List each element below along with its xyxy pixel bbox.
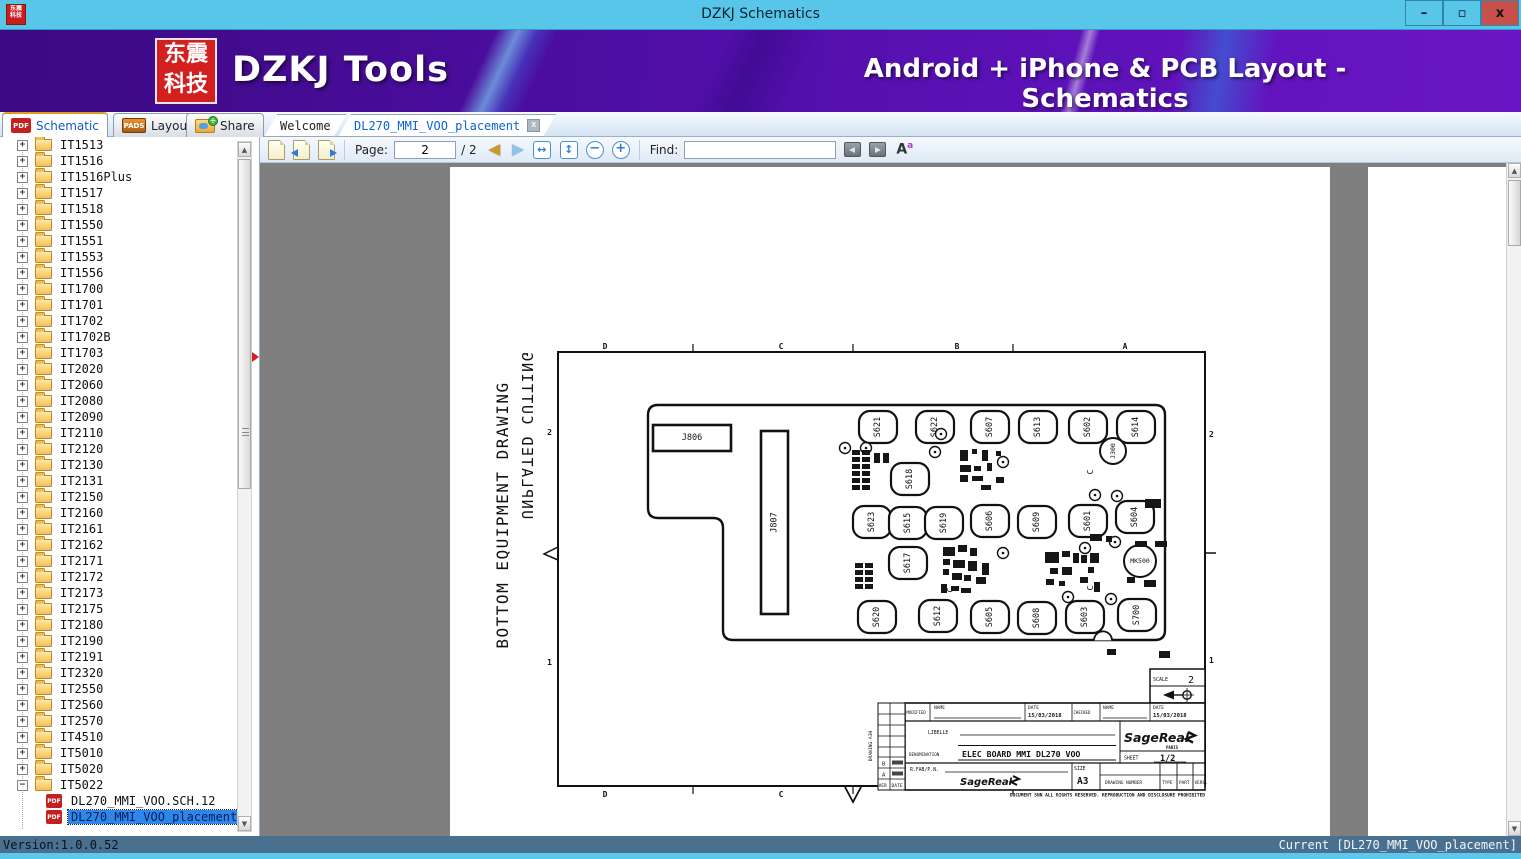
tree-item-folder[interactable]: +IT2060 xyxy=(0,377,237,393)
expand-icon[interactable]: + xyxy=(17,428,28,439)
folder-icon xyxy=(35,283,52,295)
tree-item-folder[interactable]: +IT2090 xyxy=(0,409,237,425)
doc-tab-label: DL270_MMI_VOO_placement xyxy=(354,119,520,133)
folder-icon xyxy=(35,763,52,775)
tree-item-label: IT2120 xyxy=(57,442,106,456)
folder-icon xyxy=(35,603,52,615)
tree-item-label: IT2080 xyxy=(57,394,106,408)
status-bar: Version:1.0.0.52 Current [DL270_MMI_VOO_… xyxy=(0,836,1521,853)
expand-icon[interactable]: + xyxy=(17,748,28,759)
expand-icon[interactable]: + xyxy=(17,476,28,487)
tree-item-label: IT2560 xyxy=(57,698,106,712)
tree-item-label: IT5020 xyxy=(57,762,106,776)
tree-item-folder[interactable]: +IT5010 xyxy=(0,745,237,761)
title-bar: 东震 科技 DZKJ Schematics – ▫ x xyxy=(0,0,1521,30)
plus-badge-icon: + xyxy=(208,116,218,126)
folder-icon xyxy=(35,699,52,711)
folder-icon xyxy=(35,203,52,215)
folder-icon xyxy=(35,619,52,631)
tree-item-folder[interactable]: +IT2560 xyxy=(0,697,237,713)
tree-item-folder[interactable]: +IT2320 xyxy=(0,665,237,681)
expand-icon[interactable]: + xyxy=(17,604,28,615)
tree-item-folder[interactable]: +IT1702 xyxy=(0,313,237,329)
expand-icon[interactable]: + xyxy=(17,572,28,583)
logo-text-line2: 科技 xyxy=(157,70,215,100)
tree-item-label: IT2130 xyxy=(57,458,106,472)
maximize-button[interactable]: ▫ xyxy=(1443,0,1481,26)
folder-icon xyxy=(35,187,52,199)
window-title: DZKJ Schematics xyxy=(0,6,1521,22)
find-label: Find: xyxy=(650,143,679,157)
tree-item-label: IT2020 xyxy=(57,362,106,376)
find-input[interactable] xyxy=(684,141,836,159)
tree-item-folder[interactable]: +IT2131 xyxy=(0,473,237,489)
tree-item-label: IT1700 xyxy=(57,282,106,296)
page-label: Page: xyxy=(355,143,388,157)
tree-item-folder[interactable]: +IT1703 xyxy=(0,345,237,361)
close-button[interactable]: x xyxy=(1481,0,1519,26)
tree-item-label: IT2320 xyxy=(57,666,106,680)
expand-icon[interactable]: + xyxy=(17,332,28,343)
fit-width-icon[interactable]: ↔ xyxy=(533,141,551,159)
app-window: 东震 科技 DZKJ Schematics – ▫ x 东震 科技 DZKJ T… xyxy=(0,0,1521,859)
tree-item-folder[interactable]: +IT2171 xyxy=(0,553,237,569)
tree-item-folder[interactable]: −IT5022 xyxy=(0,777,237,793)
tab-label: Share xyxy=(220,119,255,133)
tree-item-label: IT1702 xyxy=(57,314,106,328)
match-case-icon[interactable]: Aa xyxy=(896,141,913,158)
tree-item-label: IT5022 xyxy=(57,778,106,792)
pdf-icon: PDF xyxy=(46,810,62,824)
scroll-up-icon[interactable]: ▲ xyxy=(1508,163,1521,178)
folder-icon xyxy=(35,555,52,567)
tree-item-label: IT1550 xyxy=(57,218,106,232)
tree-item-label: IT2191 xyxy=(57,650,106,664)
folder-icon xyxy=(35,475,52,487)
tree-item-label: IT2060 xyxy=(57,378,106,392)
folder-icon xyxy=(35,635,52,647)
expand-icon[interactable]: + xyxy=(17,140,28,151)
pads-icon: PADS xyxy=(122,118,146,133)
expand-icon[interactable]: + xyxy=(17,732,28,743)
expand-icon[interactable]: + xyxy=(17,316,28,327)
tree-item-folder[interactable]: +IT2570 xyxy=(0,713,237,729)
folder-icon xyxy=(35,139,52,151)
splitter-marker-icon xyxy=(252,352,259,362)
folder-icon xyxy=(35,267,52,279)
tree-item-label: IT1553 xyxy=(57,250,106,264)
expand-icon[interactable]: + xyxy=(17,236,28,247)
document-page xyxy=(450,167,1330,836)
app-name: DZKJ Tools xyxy=(232,50,449,90)
folder-icon xyxy=(35,171,52,183)
status-strip xyxy=(0,853,1521,859)
expand-icon[interactable]: + xyxy=(17,252,28,263)
folder-icon xyxy=(35,299,52,311)
tab-bar: PDF Schematic PADS Layout + Share Welcom… xyxy=(0,112,1521,137)
header-banner: 东震 科技 DZKJ Tools Android + iPhone & PCB … xyxy=(0,30,1521,112)
tree-item-folder[interactable]: +IT1556 xyxy=(0,265,237,281)
doc-tab-label: Welcome xyxy=(280,119,331,133)
tree-item-label: IT2550 xyxy=(57,682,106,696)
expand-icon[interactable]: + xyxy=(17,204,28,215)
tree-item-folder[interactable]: +IT1516 xyxy=(0,153,237,169)
expand-icon[interactable]: + xyxy=(17,716,28,727)
expand-icon[interactable]: + xyxy=(17,300,28,311)
tree-item-folder[interactable]: +IT2150 xyxy=(0,489,237,505)
document-page-edge xyxy=(1368,167,1506,836)
expand-icon[interactable]: + xyxy=(17,668,28,679)
folder-icon xyxy=(35,571,52,583)
zoom-in-icon[interactable]: + xyxy=(612,141,630,159)
scroll-down-icon[interactable]: ▼ xyxy=(1508,821,1521,836)
folder-icon xyxy=(35,235,52,247)
page-total: / 2 xyxy=(461,143,477,157)
tree-item-label: IT2175 xyxy=(57,602,106,616)
tree-item-folder[interactable]: +IT2120 xyxy=(0,441,237,457)
tree-item-label: IT1516 xyxy=(57,154,106,168)
tree-item-label: IT1518 xyxy=(57,202,106,216)
tree-scrollbar-thumb[interactable] xyxy=(238,159,251,489)
expand-icon[interactable]: + xyxy=(17,540,28,551)
tree-item-folder[interactable]: +IT1517 xyxy=(0,185,237,201)
tree-item-label: IT1703 xyxy=(57,346,106,360)
expand-icon[interactable]: + xyxy=(17,620,28,631)
folder-icon xyxy=(35,379,52,391)
expand-icon[interactable]: + xyxy=(17,220,28,231)
folder-icon xyxy=(35,443,52,455)
tree-item-folder[interactable]: +IT1518 xyxy=(0,201,237,217)
expand-icon[interactable]: + xyxy=(17,268,28,279)
tree-item-folder[interactable]: +IT1551 xyxy=(0,233,237,249)
tree-item-label: IT2570 xyxy=(57,714,106,728)
pdf-icon: PDF xyxy=(11,118,31,133)
folder-icon xyxy=(35,219,52,231)
toolbar-separator xyxy=(639,140,640,160)
tree-item-label: IT2173 xyxy=(57,586,106,600)
sidebar: +IT1513+IT1516+IT1516Plus+IT1517+IT1518+… xyxy=(0,137,260,836)
tree-item-folder[interactable]: +IT2550 xyxy=(0,681,237,697)
tree-item-folder[interactable]: +IT2160 xyxy=(0,505,237,521)
tree-item-label: IT2150 xyxy=(57,490,106,504)
find-previous-icon[interactable] xyxy=(844,142,861,157)
folder-icon xyxy=(35,667,52,679)
scroll-up-icon[interactable]: ▲ xyxy=(238,142,251,157)
tree-item-label: IT1517 xyxy=(57,186,106,200)
current-file-text: Current [DL270_MMI_VOO_placement] xyxy=(1279,838,1517,852)
tree-item-label: IT2110 xyxy=(57,426,106,440)
folder-icon xyxy=(35,747,52,759)
tree-item-label: IT2161 xyxy=(57,522,106,536)
company-logo: 东震 科技 xyxy=(155,38,217,104)
folder-icon xyxy=(35,427,52,439)
tab-label: Schematic xyxy=(36,119,99,133)
tree-item-label: IT2162 xyxy=(57,538,106,552)
expand-icon[interactable]: + xyxy=(17,524,28,535)
expand-icon[interactable]: + xyxy=(17,636,28,647)
document-viewport: DCBADC2121BOTTOM EQUIPMENT DRAWINGUNPLAT… xyxy=(260,163,1521,836)
tree-item-label: IT2160 xyxy=(57,506,106,520)
logo-text-line1: 东震 xyxy=(157,40,215,70)
tree-item-folder[interactable]: +IT2191 xyxy=(0,649,237,665)
expand-icon[interactable]: + xyxy=(17,460,28,471)
folder-icon xyxy=(35,155,52,167)
expand-icon[interactable]: + xyxy=(17,764,28,775)
tree-item-folder[interactable]: +IT2110 xyxy=(0,425,237,441)
tree-item-label: IT2090 xyxy=(57,410,106,424)
copy-page-right-icon[interactable] xyxy=(318,140,335,160)
expand-icon[interactable]: + xyxy=(17,188,28,199)
tree-item-folder[interactable]: +IT2162 xyxy=(0,537,237,553)
tree-item-label: IT1702B xyxy=(57,330,114,344)
folder-icon xyxy=(35,523,52,535)
scroll-down-icon[interactable]: ▼ xyxy=(238,816,251,831)
tree-item-folder[interactable]: +IT1513 xyxy=(0,137,237,153)
tree-item-folder[interactable]: +IT1701 xyxy=(0,297,237,313)
tree-item-folder[interactable]: +IT2020 xyxy=(0,361,237,377)
tree-item-label: DL270_MMI_VOO.SCH.12 xyxy=(68,794,219,808)
file-tree: +IT1513+IT1516+IT1516Plus+IT1517+IT1518+… xyxy=(0,137,237,836)
folder-icon xyxy=(35,491,52,503)
tree-scrollbar[interactable]: ▲ ▼ xyxy=(237,141,252,832)
previous-page-icon[interactable]: ◀ xyxy=(489,142,501,157)
expand-icon[interactable]: + xyxy=(17,700,28,711)
tree-item-label: IT1551 xyxy=(57,234,106,248)
folder-icon xyxy=(35,539,52,551)
folder-icon xyxy=(35,363,52,375)
banner-tagline: Android + iPhone & PCB Layout - Schemati… xyxy=(790,54,1420,112)
tree-item-label: IT1556 xyxy=(57,266,106,280)
expand-icon[interactable]: + xyxy=(17,380,28,391)
folder-icon xyxy=(35,315,52,327)
expand-icon[interactable]: + xyxy=(17,556,28,567)
tree-item-label: IT1513 xyxy=(57,138,106,152)
folder-icon xyxy=(35,651,52,663)
tree-item-folder[interactable]: +IT1553 xyxy=(0,249,237,265)
window-controls: – ▫ x xyxy=(1405,0,1519,26)
expand-icon[interactable]: + xyxy=(17,508,28,519)
tree-item-folder[interactable]: +IT2172 xyxy=(0,569,237,585)
folder-icon xyxy=(35,347,52,359)
tree-item-folder[interactable]: +IT1700 xyxy=(0,281,237,297)
tree-item-label: IT1701 xyxy=(57,298,106,312)
folder-icon xyxy=(35,731,52,743)
tree-item-folder[interactable]: +IT2190 xyxy=(0,633,237,649)
tree-item-label: IT2190 xyxy=(57,634,106,648)
copy-page-left-icon[interactable] xyxy=(293,140,310,160)
tab-schematic[interactable]: PDF Schematic xyxy=(2,112,108,137)
folder-icon xyxy=(35,331,52,343)
expand-icon[interactable]: + xyxy=(17,684,28,695)
tree-item-label: IT2131 xyxy=(57,474,106,488)
expand-icon[interactable]: + xyxy=(17,412,28,423)
tree-item-folder[interactable]: +IT2180 xyxy=(0,617,237,633)
fit-page-icon[interactable]: ↕ xyxy=(560,141,578,159)
tab-share[interactable]: + Share xyxy=(186,113,264,137)
doc-tab-placement[interactable]: DL270_MMI_VOO_placement x xyxy=(338,114,556,137)
viewer-toolbar: Page: / 2 ◀ ▶ ↔ ↕ − + Find: Aa xyxy=(260,137,1521,163)
expand-icon[interactable]: + xyxy=(17,348,28,359)
expand-icon[interactable]: + xyxy=(17,444,28,455)
scrollbar-grip xyxy=(242,428,249,436)
tree-item-label: IT5010 xyxy=(57,746,106,760)
close-tab-icon[interactable]: x xyxy=(527,119,540,132)
tree-item-folder[interactable]: +IT1550 xyxy=(0,217,237,233)
folder-icon xyxy=(35,459,52,471)
version-text: Version:1.0.0.52 xyxy=(3,838,119,852)
zoom-out-icon[interactable]: − xyxy=(586,141,604,159)
tree-item-label: IT2171 xyxy=(57,554,106,568)
folder-icon xyxy=(35,507,52,519)
expand-icon[interactable]: + xyxy=(17,652,28,663)
tree-item-label: DL270_MMI_VOO_placement xyxy=(68,810,237,824)
folder-icon xyxy=(35,779,52,791)
page-view-icon[interactable] xyxy=(268,140,285,160)
tree-item-label: IT4510 xyxy=(57,730,106,744)
expand-icon[interactable]: + xyxy=(17,588,28,599)
find-next-icon[interactable] xyxy=(869,142,886,157)
folder-icon xyxy=(35,395,52,407)
expand-icon[interactable]: + xyxy=(17,172,28,183)
tree-item-folder[interactable]: +IT2130 xyxy=(0,457,237,473)
expand-icon[interactable]: + xyxy=(17,396,28,407)
pdf-icon: PDF xyxy=(46,794,62,808)
expand-icon[interactable]: + xyxy=(17,492,28,503)
tree-item-label: IT1516Plus xyxy=(57,170,135,184)
tree-item-folder[interactable]: +IT2161 xyxy=(0,521,237,537)
tree-item-folder[interactable]: +IT2173 xyxy=(0,585,237,601)
banner-light-streak xyxy=(452,30,562,112)
minimize-button[interactable]: – xyxy=(1405,0,1443,26)
toolbar-separator xyxy=(344,140,345,160)
expand-icon[interactable]: − xyxy=(17,780,28,791)
document-scrollbar-thumb[interactable] xyxy=(1508,180,1521,246)
document-scrollbar[interactable]: ▲ ▼ xyxy=(1506,163,1521,836)
doc-tab-welcome[interactable]: Welcome xyxy=(264,114,347,137)
folder-icon xyxy=(35,587,52,599)
expand-icon[interactable]: + xyxy=(17,284,28,295)
expand-icon[interactable]: + xyxy=(17,156,28,167)
tree-item-folder[interactable]: +IT2175 xyxy=(0,601,237,617)
folder-icon xyxy=(35,715,52,727)
tree-item-folder[interactable]: +IT5020 xyxy=(0,761,237,777)
tree-item-label: IT2172 xyxy=(57,570,106,584)
tree-item-folder[interactable]: +IT2080 xyxy=(0,393,237,409)
tree-item-folder[interactable]: +IT1702B xyxy=(0,329,237,345)
share-folder-icon: + xyxy=(195,119,215,133)
expand-icon[interactable]: + xyxy=(17,364,28,375)
page-number-input[interactable] xyxy=(394,141,456,159)
folder-icon xyxy=(35,411,52,423)
tree-item-folder[interactable]: +IT4510 xyxy=(0,729,237,745)
tree-item-folder[interactable]: +IT1516Plus xyxy=(0,169,237,185)
folder-icon xyxy=(35,251,52,263)
next-page-icon[interactable]: ▶ xyxy=(512,142,524,157)
tree-item-label: IT2180 xyxy=(57,618,106,632)
tree-item-file[interactable]: PDFDL270_MMI_VOO.SCH.12 xyxy=(0,793,237,809)
folder-icon xyxy=(35,683,52,695)
tree-item-file[interactable]: PDFDL270_MMI_VOO_placement xyxy=(0,809,237,825)
